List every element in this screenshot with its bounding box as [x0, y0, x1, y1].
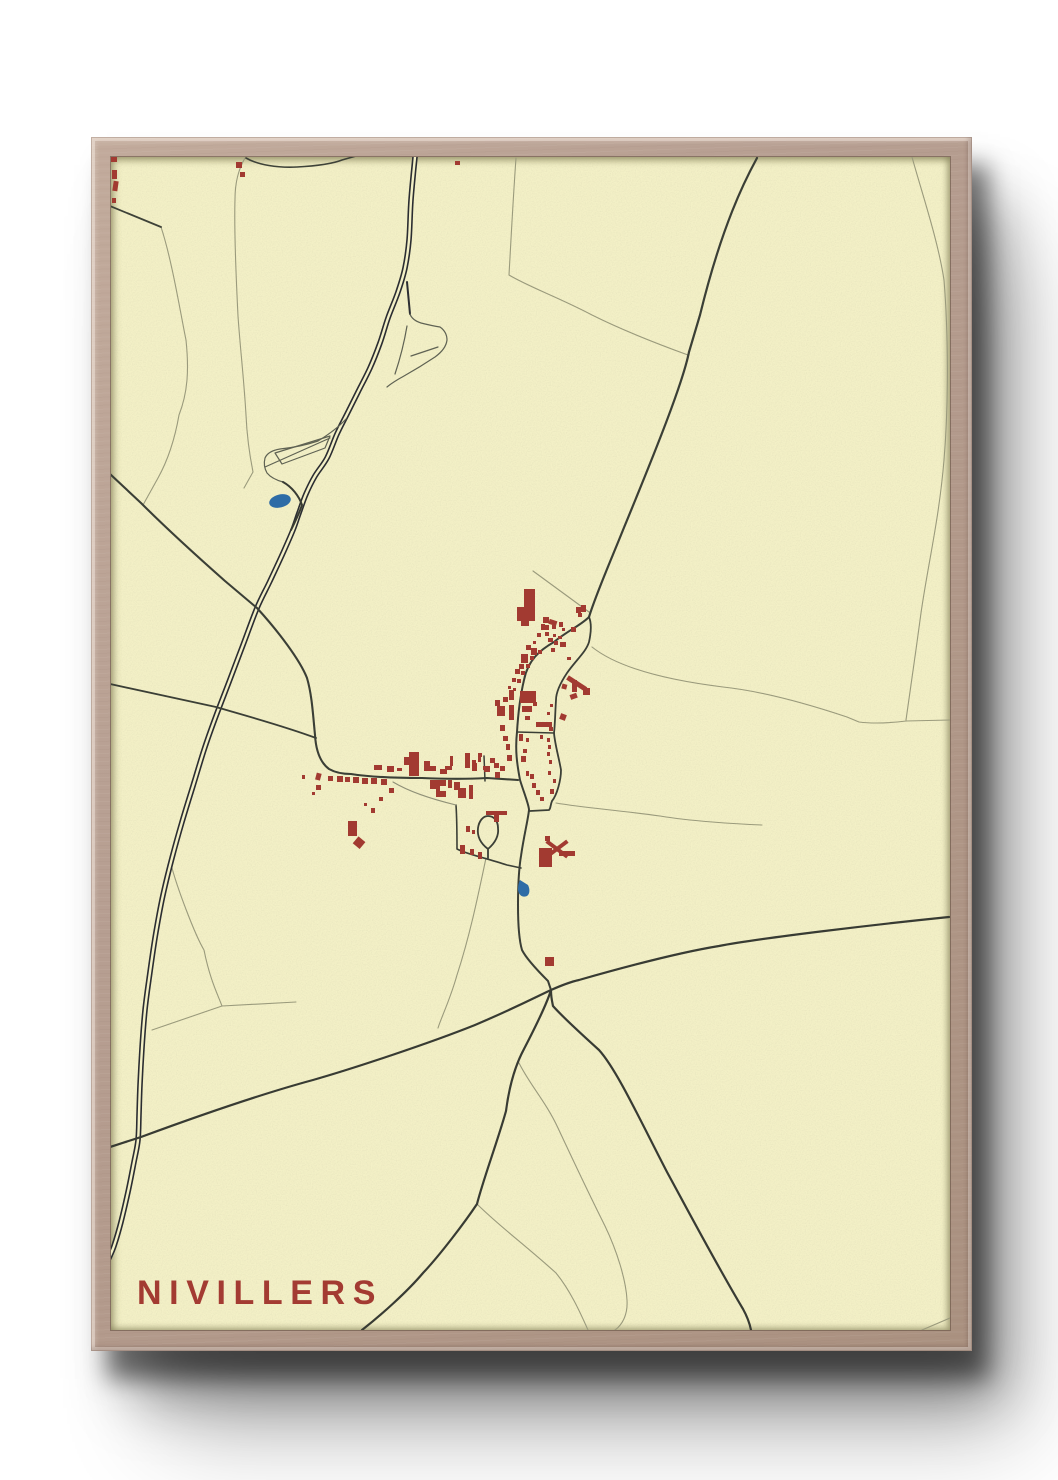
svg-text:NIVILLERS: NIVILLERS	[137, 1274, 383, 1312]
